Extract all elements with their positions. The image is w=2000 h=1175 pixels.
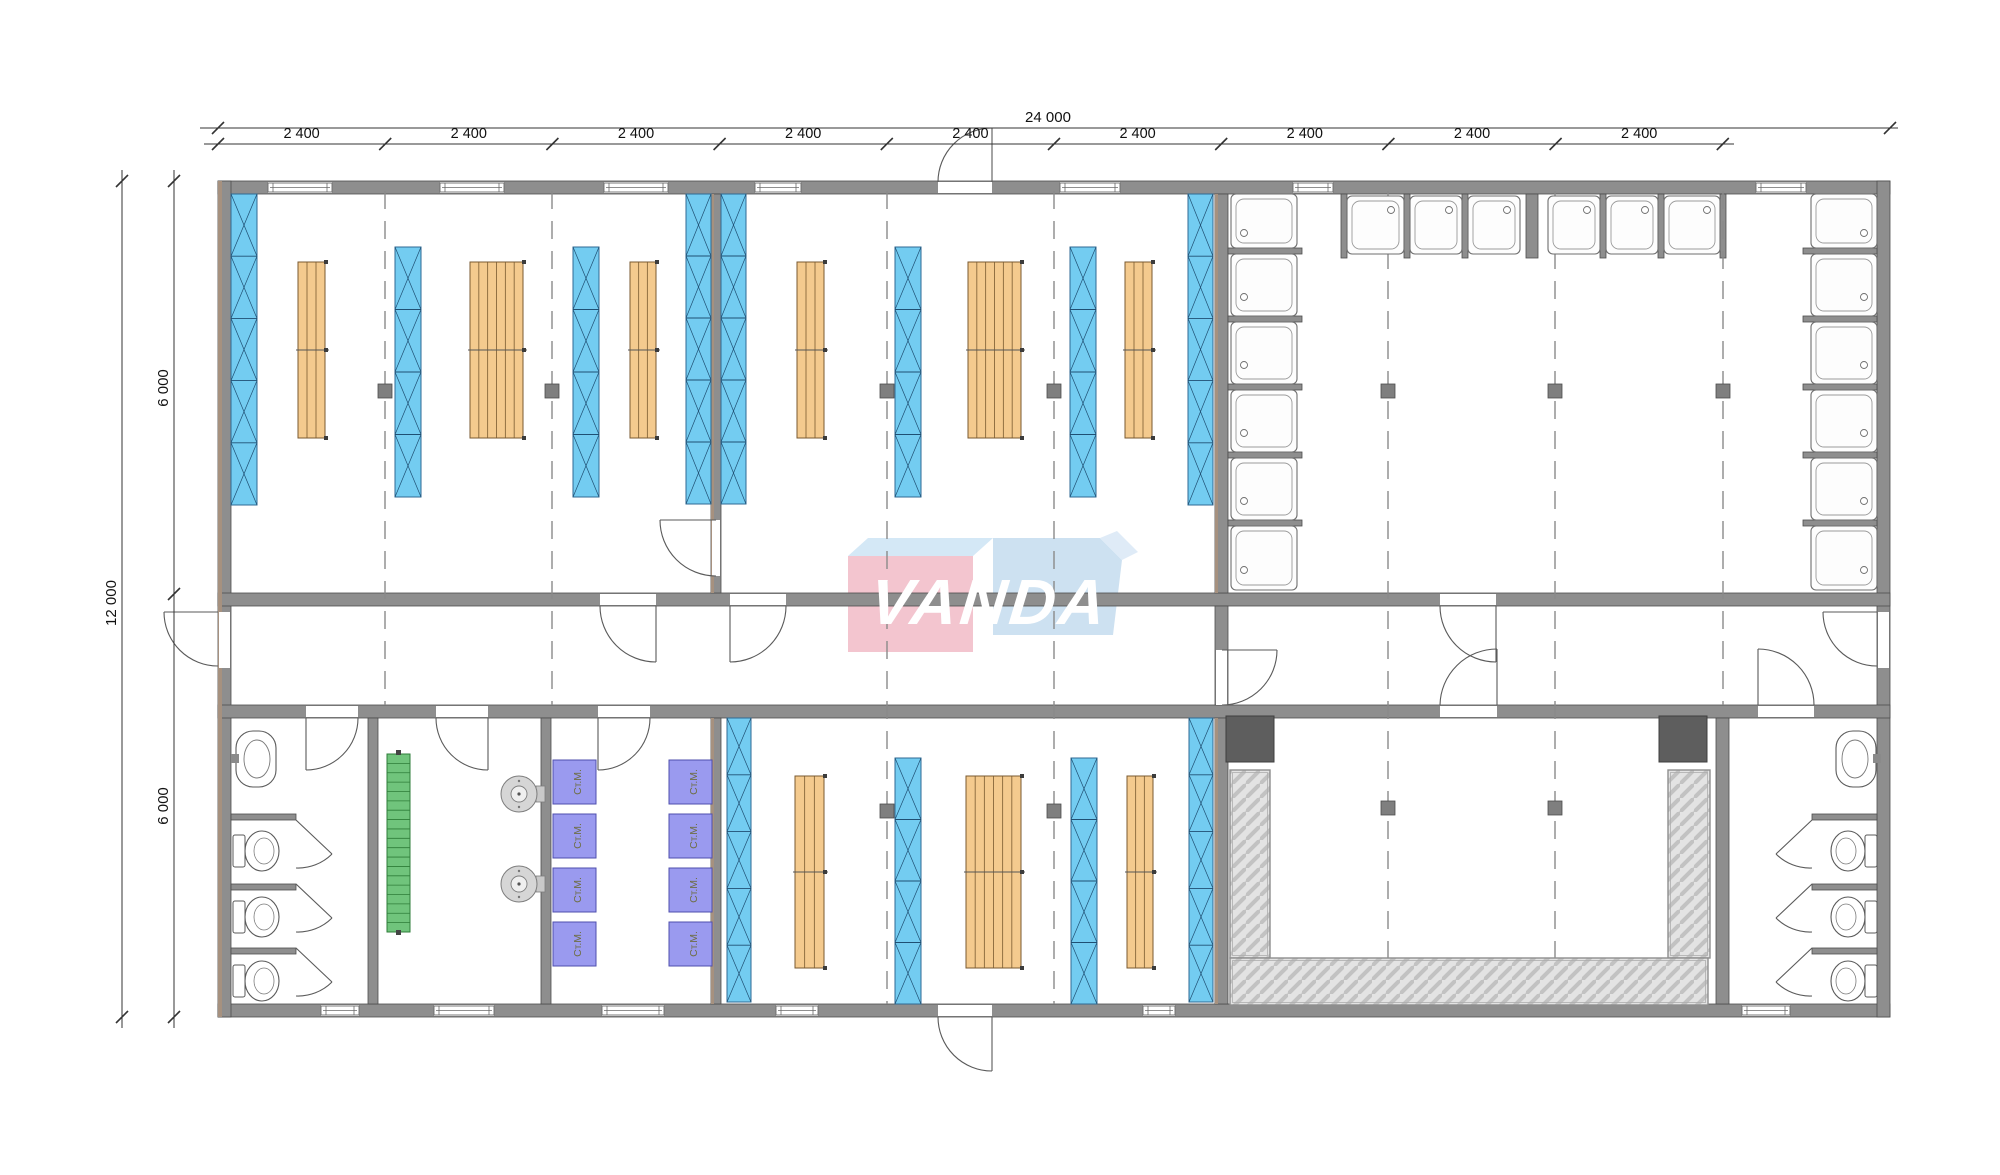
water-heater-dot [518, 806, 520, 808]
wall [1716, 718, 1729, 1004]
shower-drain [1241, 498, 1248, 505]
wall [1228, 520, 1302, 526]
toilet-tank [233, 901, 245, 933]
wall-opening [1216, 650, 1227, 705]
wall [1526, 194, 1538, 258]
door-swing-arc [1758, 649, 1814, 705]
door-swing-arc [660, 520, 716, 576]
serving-counter [1668, 770, 1710, 958]
floor-plan-svg: Ст.М.Ст.М.Ст.М.Ст.М.Ст.М.Ст.М.Ст.М.Ст.М.… [0, 0, 2000, 1175]
wall [1803, 248, 1877, 254]
shower-tray [1811, 194, 1877, 248]
wall [368, 718, 378, 1004]
serving-counter [1230, 958, 1708, 1005]
shower-drain [1241, 567, 1248, 574]
dim-label-module: 2 400 [451, 126, 487, 142]
bed-end-nub [1020, 260, 1024, 264]
bed-end-nub [522, 260, 526, 264]
shower-tray [1811, 458, 1877, 520]
wall [1803, 384, 1877, 390]
slatted-rack [387, 754, 410, 932]
kitchen-equipment [1659, 716, 1707, 762]
wall-opening [712, 520, 720, 576]
shower-drain [1642, 207, 1649, 214]
shower-drain [1241, 230, 1248, 237]
door-leaf [1776, 884, 1812, 918]
wall-opening [598, 706, 650, 717]
shower-drain [1241, 362, 1248, 369]
wall-opening [938, 182, 992, 193]
serving-counter [1230, 770, 1270, 958]
door-leaf [1776, 948, 1812, 982]
wall-opening [600, 594, 656, 605]
bed-end-nub [655, 260, 659, 264]
bed-end-nub [655, 436, 659, 440]
wall-opening [938, 1005, 992, 1016]
bed-end-nub [823, 260, 827, 264]
column-marker [545, 384, 559, 398]
bed-end-nub [324, 436, 328, 440]
washing-machine-label: Ст.М. [688, 877, 700, 903]
wall [1803, 452, 1877, 458]
column-marker [1047, 804, 1061, 818]
door-swing-arc [598, 718, 650, 770]
column-marker [1548, 384, 1562, 398]
door-swing-arc [1222, 650, 1277, 705]
rack-end [396, 930, 401, 935]
bed-end-nub [522, 348, 526, 352]
dim-label-overall-width: 24 000 [1025, 109, 1071, 126]
wall-opening [1440, 594, 1496, 605]
washing-machine-label: Ст.М. [688, 931, 700, 957]
bed-end-nub [823, 966, 827, 970]
shower-tray [1231, 526, 1297, 590]
wall-opening [436, 706, 488, 717]
shower-drain [1504, 207, 1511, 214]
wall-opening [730, 594, 786, 605]
wall [1812, 814, 1877, 820]
sink-tap [1873, 754, 1881, 763]
column-marker [378, 384, 392, 398]
shower-tray [1811, 254, 1877, 316]
door-swing-arc [296, 982, 332, 996]
wall-opening [1440, 706, 1497, 717]
washing-machine-label: Ст.М. [572, 931, 584, 957]
dim-label-module: 2 400 [785, 126, 821, 142]
toilet-tank [233, 835, 245, 867]
bed-end-nub [1020, 774, 1024, 778]
water-heater-dot [518, 870, 520, 872]
washing-machine-label: Ст.М. [572, 877, 584, 903]
shower-tray [1231, 194, 1297, 248]
washing-machine-label: Ст.М. [572, 769, 584, 795]
bed-end-nub [823, 348, 827, 352]
shower-tray [1606, 196, 1658, 254]
door-swing-arc [1776, 854, 1812, 868]
column-marker [1381, 384, 1395, 398]
bed-end-nub [1151, 348, 1155, 352]
shower-drain [1861, 498, 1868, 505]
toilet-tank [1865, 901, 1877, 933]
bed-end-nub [655, 348, 659, 352]
bed-end-nub [1152, 966, 1156, 970]
rack-end [396, 750, 401, 755]
washing-machine-label: Ст.М. [688, 823, 700, 849]
shower-drain [1446, 207, 1453, 214]
bed-end-nub [823, 436, 827, 440]
dim-label-module: 2 400 [1119, 126, 1155, 142]
shower-drain [1861, 230, 1868, 237]
shower-drain [1388, 207, 1395, 214]
shower-tray [1548, 196, 1600, 254]
door-swing-arc [296, 854, 332, 868]
wall [1228, 384, 1302, 390]
door-swing-arc [436, 718, 488, 770]
shower-tray [1811, 390, 1877, 452]
kitchen-equipment [1226, 716, 1274, 762]
door-swing-arc [306, 718, 358, 770]
door-swing-arc [938, 1017, 992, 1071]
bed-end-nub [1020, 436, 1024, 440]
wall [231, 948, 296, 954]
bed-end-nub [823, 774, 827, 778]
shower-tray [1231, 254, 1297, 316]
column-marker [1548, 801, 1562, 815]
floor-plan-page: Ст.М.Ст.М.Ст.М.Ст.М.Ст.М.Ст.М.Ст.М.Ст.М.… [0, 0, 2000, 1175]
wall-opening [306, 706, 358, 717]
bed-end-nub [1151, 436, 1155, 440]
washing-machine-label: Ст.М. [572, 823, 584, 849]
dim-label-module: 2 400 [1454, 126, 1490, 142]
shower-drain [1861, 430, 1868, 437]
bed-end-nub [823, 870, 827, 874]
dim-label-half-depth: 6 000 [155, 369, 172, 407]
toilet-tank [1865, 965, 1877, 997]
door-swing-arc [730, 606, 786, 662]
wall-face [1215, 718, 1218, 1004]
wall [231, 814, 296, 820]
wall-opening [219, 612, 230, 668]
door-swing-arc [1776, 982, 1812, 996]
wall [541, 718, 551, 1004]
logo-bevel [848, 538, 993, 556]
wall [1812, 884, 1877, 890]
shower-tray [1347, 196, 1404, 254]
door-swing-arc [1440, 649, 1497, 705]
bed-end-nub [324, 348, 328, 352]
vanda-logo-text-layer: VANDA [867, 566, 1112, 638]
wall [1803, 520, 1877, 526]
bed-end-nub [1020, 966, 1024, 970]
wall [1658, 194, 1664, 258]
wall [1803, 316, 1877, 322]
shower-tray [1664, 196, 1720, 254]
toilet-tank [233, 965, 245, 997]
wall [1462, 194, 1468, 258]
column-marker [1716, 384, 1730, 398]
bed-end-nub [522, 436, 526, 440]
wall-face [1215, 194, 1218, 593]
shower-drain [1584, 207, 1591, 214]
column-marker [880, 384, 894, 398]
shower-drain [1241, 430, 1248, 437]
shower-tray [1468, 196, 1520, 254]
door-swing-arc [600, 606, 656, 662]
water-heater-dot [517, 882, 520, 885]
dim-label-module: 2 400 [283, 126, 319, 142]
shower-drain [1704, 207, 1711, 214]
column-marker [1047, 384, 1061, 398]
wall-opening [1878, 612, 1889, 668]
dim-label-module: 2 400 [952, 126, 988, 142]
door-swing-arc [1776, 918, 1812, 932]
shower-tray [1811, 322, 1877, 384]
water-heater-dot [518, 780, 520, 782]
shower-drain [1241, 294, 1248, 301]
water-heater-dot [518, 896, 520, 898]
bed-end-nub [1152, 774, 1156, 778]
door-leaf [1776, 820, 1812, 854]
vanda-logo-text: VANDA [867, 566, 1112, 638]
shower-tray [1811, 526, 1877, 590]
door-leaf [296, 884, 332, 918]
shower-tray [1231, 322, 1297, 384]
column-marker [1381, 801, 1395, 815]
door-swing-arc [164, 612, 218, 666]
washing-machine-label: Ст.М. [688, 769, 700, 795]
bed-end-nub [1020, 348, 1024, 352]
wall [1341, 194, 1347, 258]
wall [1812, 948, 1877, 954]
dim-label-module: 2 400 [618, 126, 654, 142]
water-heater-dot [517, 792, 520, 795]
shower-tray [1231, 458, 1297, 520]
column-marker [880, 804, 894, 818]
wall [1228, 452, 1302, 458]
wall [231, 884, 296, 890]
shower-tray [1410, 196, 1462, 254]
sink-tap [231, 754, 239, 763]
shower-drain [1861, 362, 1868, 369]
wall-opening [1758, 706, 1814, 717]
shower-tray [1231, 390, 1297, 452]
door-swing-arc [1823, 612, 1877, 666]
bed-end-nub [324, 260, 328, 264]
dim-label-overall-depth: 12 000 [103, 580, 120, 626]
wall [1228, 316, 1302, 322]
toilet-tank [1865, 835, 1877, 867]
door-swing-arc [1440, 606, 1496, 662]
shower-drain [1861, 567, 1868, 574]
shower-drain [1861, 294, 1868, 301]
wall [1404, 194, 1410, 258]
dim-label-module: 2 400 [1287, 126, 1323, 142]
bed-end-nub [1151, 260, 1155, 264]
wall [1228, 248, 1302, 254]
dim-label-module: 2 400 [1621, 126, 1657, 142]
dim-label-half-depth: 6 000 [155, 787, 172, 825]
bed-end-nub [1020, 870, 1024, 874]
wall [1600, 194, 1606, 258]
door-leaf [296, 820, 332, 854]
wall-face [218, 181, 222, 1017]
bed-end-nub [1152, 870, 1156, 874]
door-leaf [296, 948, 332, 982]
door-swing-arc [296, 918, 332, 932]
